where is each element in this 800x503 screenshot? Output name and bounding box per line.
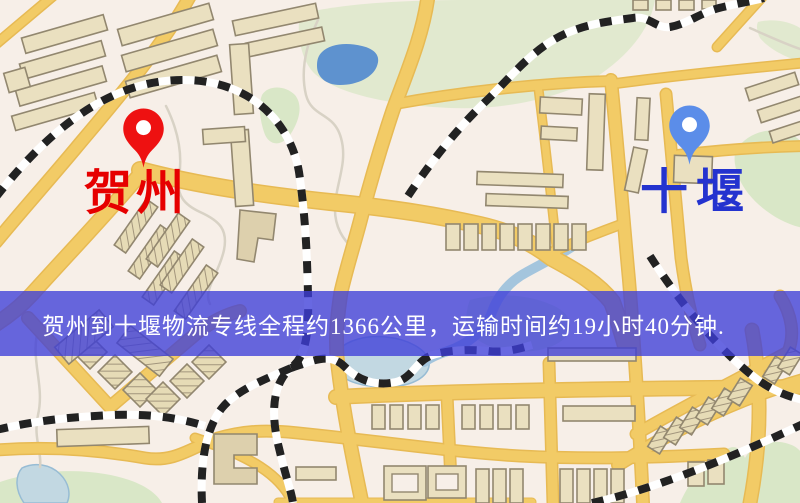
origin-label: 贺州 xyxy=(84,169,188,219)
origin-pin-icon xyxy=(121,107,166,170)
origin-pin[interactable] xyxy=(121,107,166,170)
basemap-graphic xyxy=(0,0,800,503)
route-info-banner: 贺州到十堰物流专线全程约1366公里，运输时间约19小时40分钟. xyxy=(0,291,800,356)
destination-label: 十堰 xyxy=(640,168,752,218)
destination-pin[interactable] xyxy=(667,104,712,167)
map-canvas[interactable]: 贺州 十堰 贺州到十堰物流专线全程约1366公里，运输时间约19小时40分钟. xyxy=(0,0,800,503)
route-info-text: 贺州到十堰物流专线全程约1366公里，运输时间约19小时40分钟. xyxy=(0,307,725,341)
destination-pin-icon xyxy=(667,104,712,167)
